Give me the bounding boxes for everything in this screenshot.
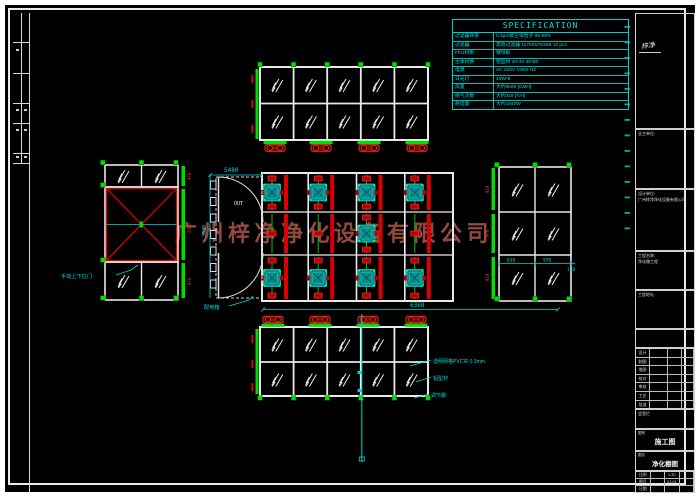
spec-row-value: 0.3μm级尘埃粒子 99.99%: [494, 33, 628, 41]
caster-wheel: [406, 316, 426, 323]
green-connector: [101, 296, 106, 301]
titleblock-note-cell: 会签栏: [635, 409, 695, 429]
signature-role-label: 设计: [636, 349, 650, 357]
spec-row-value: 铝型材 40*40 40*80: [494, 59, 628, 67]
green-connector: [174, 296, 179, 301]
signature-rows: 设计制图描图校对审核工艺批准: [636, 349, 694, 409]
dim-text: 2350: [187, 223, 192, 233]
glass-symbol: [406, 374, 417, 387]
signature-row: 制图: [636, 358, 694, 367]
project-value: 净化棚工程: [636, 258, 694, 264]
signature-empty-cell: [650, 401, 668, 409]
info-cell: [680, 479, 695, 485]
glass-symbol: [406, 116, 417, 129]
caster-wheel: [265, 145, 285, 152]
green-connector: [567, 163, 572, 168]
spec-row-label: 耗电量: [453, 101, 494, 110]
spec-row-value: 大约318 [T/H]: [494, 93, 628, 101]
glass-symbol: [339, 339, 350, 352]
titleblock-type-cell: 图别 施工图: [635, 429, 695, 451]
specification-table: SPECIFICATION 过滤器效率0.3μm级尘埃粒子 99.99%过滤器高…: [452, 19, 629, 110]
spec-row: 日光灯40W*8: [453, 76, 628, 85]
ffu-unit: [356, 214, 378, 253]
signature-empty-cell: [668, 375, 682, 383]
ffu-unit: [356, 257, 378, 299]
green-connector: [392, 62, 397, 67]
spec-row: 主体材质铝型材 40*40 40*80: [453, 59, 628, 68]
plan-left-dim: 3930: [202, 225, 208, 237]
glass-symbol: [339, 374, 350, 387]
signature-empty-cell: [650, 349, 668, 357]
glass-symbol: [548, 184, 559, 197]
caster-wheel: [311, 145, 331, 152]
plan-top-dim: 5480: [224, 167, 239, 174]
signature-row: 批准: [636, 401, 694, 409]
signature-empty-cell: [668, 366, 682, 374]
titleblock-design-cell: 设计单位: 广州梓净净化设备有限公司: [635, 189, 695, 251]
glass-symbol: [155, 275, 166, 288]
dim-text: 818: [485, 273, 490, 281]
green-connector: [426, 396, 431, 401]
green-connector: [101, 258, 106, 263]
green-connector: [258, 62, 263, 67]
spec-row-label: 风量: [453, 84, 494, 92]
left-side-elevation: 9702350970手动上下拉门: [61, 160, 192, 300]
address-label: 工程地址:: [636, 291, 694, 297]
drawing-sheet: 广州梓净净化设备有限公司 透明网格PVC帘 0.3mm铝型材调节脚9702350…: [5, 5, 695, 492]
pvc-curtain-label: 透明网格PVC帘 0.3mm: [433, 358, 485, 365]
spec-row-value: 镀锌板: [494, 50, 628, 58]
note-label: 会签栏: [636, 410, 694, 416]
glass-symbol: [305, 339, 316, 352]
type-label: 图别: [636, 430, 694, 436]
spec-row-value: AC 220V 1Φ50 HZ: [494, 67, 628, 75]
glass-symbol: [339, 116, 350, 129]
plan-view: [261, 173, 453, 301]
type-value: 施工图: [636, 437, 694, 447]
aluminum-profile-label: 铝型材: [433, 375, 448, 382]
glass-symbol: [305, 79, 316, 92]
green-connector: [495, 163, 500, 168]
glass-symbol: [118, 170, 129, 183]
glass-symbol: [406, 339, 417, 352]
signature-empty-cell: [650, 375, 668, 383]
glass-symbol: [339, 79, 350, 92]
name-value: 净化棚图: [636, 458, 694, 468]
info-cell: [651, 479, 666, 485]
info-row: 比例1:30: [636, 472, 694, 479]
green-connector: [139, 160, 144, 165]
glass-symbol: [272, 116, 283, 129]
logo-signature: 梓净: [640, 40, 655, 52]
signature-empty-cell: [650, 392, 668, 400]
signature-empty-cell: [668, 383, 682, 391]
titleblock-logo-cell: [635, 13, 695, 129]
power-box-label: 配电箱: [204, 303, 220, 311]
titleblock-owner-cell: 业主单位:: [635, 129, 695, 189]
spec-row: FFU材质镀锌板: [453, 50, 628, 59]
signature-role-label: 校对: [636, 375, 650, 383]
spec-row-label: 过滤器效率: [453, 33, 494, 41]
spec-row-label: 过滤器: [453, 42, 494, 50]
dim-text: 818: [485, 185, 490, 193]
info-cell: 日期: [636, 486, 651, 492]
manual-door-label: 手动上下拉门: [61, 272, 92, 280]
titleblock-address-cell: 工程地址:: [635, 290, 695, 329]
signature-role-label: 批准: [636, 401, 650, 409]
ffu-unit: [404, 257, 426, 299]
green-connector: [359, 62, 364, 67]
signature-row: 设计: [636, 349, 694, 358]
signature-empty-cell: [650, 383, 668, 391]
ffu-unit: [261, 175, 283, 210]
dim-text: 970: [485, 229, 490, 237]
dim-text: 970: [187, 277, 192, 285]
caster-wheel: [359, 145, 379, 152]
info-cell: ZJ-01: [665, 479, 680, 485]
glass-symbol: [373, 79, 384, 92]
glass-symbol: [548, 272, 559, 285]
spec-row: 耗电量大约1840W: [453, 101, 628, 110]
info-cell: [680, 472, 695, 478]
caster-wheel: [310, 316, 330, 323]
titleblock-signature-table: 设计制图描图校对审核工艺批准: [635, 348, 695, 409]
spec-row-label: 日光灯: [453, 76, 494, 84]
info-rows: 比例1:30图号ZJ-01日期: [636, 472, 694, 493]
green-connector: [359, 396, 364, 401]
green-connector: [533, 163, 538, 168]
spec-rows: 过滤器效率0.3μm级尘埃粒子 99.99%过滤器高效过滤器 1175X575X…: [453, 33, 628, 110]
door-assembly: OUT: [211, 177, 264, 298]
signature-row: 审核: [636, 383, 694, 392]
caster-wheel: [358, 316, 378, 323]
glass-symbol: [118, 275, 129, 288]
green-connector: [291, 396, 296, 401]
glass-symbol: [272, 374, 283, 387]
ffu-unit: [307, 257, 329, 299]
cad-canvas: 广州梓净净化设备有限公司 透明网格PVC帘 0.3mm铝型材调节脚9702350…: [0, 0, 700, 497]
signature-empty-cell: [668, 392, 682, 400]
titleblock-spacer-cell: [635, 329, 695, 348]
spec-row-label: FFU材质: [453, 50, 494, 58]
titleblock-info-table: 比例1:30图号ZJ-01日期: [635, 471, 695, 493]
info-cell: [680, 486, 695, 492]
signature-role-label: 审核: [636, 383, 650, 391]
spec-row-label: 电源: [453, 67, 494, 75]
plan-bottom-dim: 6368: [410, 302, 425, 309]
titleblock-name-cell: 图名 净化棚图: [635, 451, 695, 471]
signature-empty-cell: [650, 358, 668, 366]
glass-symbol: [305, 374, 316, 387]
signature-empty-cell: [682, 383, 694, 391]
spec-row: 换气次数大约318 [T/H]: [453, 93, 628, 102]
signature-row: 描图: [636, 366, 694, 375]
signature-row: 工艺: [636, 392, 694, 401]
glass-symbol: [512, 228, 523, 241]
spec-row-value: 40W*8: [494, 76, 628, 84]
ffu-unit: [356, 175, 378, 210]
green-connector: [325, 62, 330, 67]
ffu-unit: [404, 175, 426, 210]
green-connector: [101, 160, 106, 165]
spec-row-label: 换气次数: [453, 93, 494, 101]
spec-row: 风量大约9600 [CMH]: [453, 84, 628, 93]
spec-row-value: 大约1840W: [494, 101, 628, 110]
spec-row-value: 高效过滤器 1175X575X69 10 pcs: [494, 42, 628, 50]
spec-title: SPECIFICATION: [453, 20, 628, 33]
glass-symbol: [373, 116, 384, 129]
adjust-foot-label: 调节脚: [431, 392, 446, 399]
green-connector: [258, 396, 263, 401]
glass-symbol: [512, 272, 523, 285]
dim-text: 970: [543, 258, 551, 264]
spec-row: 过滤器效率0.3μm级尘埃粒子 99.99%: [453, 33, 628, 42]
bottom-elevation-grid: 透明网格PVC帘 0.3mm铝型材调节脚: [252, 314, 485, 462]
top-elevation-grid: [252, 62, 431, 151]
green-connector: [139, 296, 144, 301]
signature-empty-cell: [650, 366, 668, 374]
info-cell: [651, 486, 666, 492]
spec-row-label: 主体材质: [453, 59, 494, 67]
signature-empty-cell: [682, 349, 694, 357]
signature-role-label: 描图: [636, 366, 650, 374]
signature-empty-cell: [668, 349, 682, 357]
ffu-unit: [261, 257, 283, 299]
green-connector: [174, 160, 179, 165]
signature-role-label: 制图: [636, 358, 650, 366]
signature-row: 校对: [636, 375, 694, 384]
green-connector: [325, 396, 330, 401]
signature-empty-cell: [682, 375, 694, 383]
green-connector: [567, 297, 572, 302]
spec-row: 电源AC 220V 1Φ50 HZ: [453, 67, 628, 76]
green-connector: [495, 297, 500, 302]
signature-empty-cell: [682, 392, 694, 400]
signature-empty-cell: [682, 366, 694, 374]
glass-symbol: [272, 79, 283, 92]
ffu-unit: [307, 175, 329, 210]
dim-text: 128: [567, 267, 575, 273]
info-row: 日期: [636, 486, 694, 493]
glass-symbol: [512, 184, 523, 197]
green-connector: [101, 183, 106, 188]
glass-symbol: [373, 374, 384, 387]
green-connector: [291, 62, 296, 67]
signature-empty-cell: [668, 358, 682, 366]
glass-symbol: [155, 170, 166, 183]
design-value: 广州梓净净化设备有限公司: [636, 196, 694, 202]
glass-symbol: [406, 79, 417, 92]
glass-symbol: [272, 339, 283, 352]
out-label: OUT: [234, 201, 243, 207]
info-cell: [665, 486, 680, 492]
glass-symbol: [305, 116, 316, 129]
right-side-elevation: 818970128818970818: [485, 163, 575, 302]
info-row: 图号ZJ-01: [636, 479, 694, 486]
caster-wheel: [263, 316, 283, 323]
signature-empty-cell: [682, 401, 694, 409]
owner-label: 业主单位:: [636, 130, 694, 136]
green-connector: [533, 297, 538, 302]
spec-row-value: 大约9600 [CMH]: [494, 84, 628, 92]
green-connector: [426, 62, 431, 67]
info-cell: 图号: [636, 479, 651, 485]
caster-wheel: [407, 145, 427, 152]
titleblock-project-cell: 工程名称: 净化棚工程: [635, 251, 695, 290]
glass-symbol: [373, 339, 384, 352]
info-cell: 比例: [636, 472, 651, 478]
info-cell: [651, 472, 666, 478]
info-cell: 1:30: [665, 472, 680, 478]
glass-symbol: [548, 228, 559, 241]
green-connector: [392, 396, 397, 401]
dim-text: 818: [507, 258, 515, 264]
dim-text: 970: [187, 172, 192, 180]
logo-underline: [639, 52, 661, 53]
signature-empty-cell: [682, 358, 694, 366]
signature-role-label: 工艺: [636, 392, 650, 400]
signature-empty-cell: [668, 401, 682, 409]
spec-row: 过滤器高效过滤器 1175X575X69 10 pcs: [453, 42, 628, 51]
